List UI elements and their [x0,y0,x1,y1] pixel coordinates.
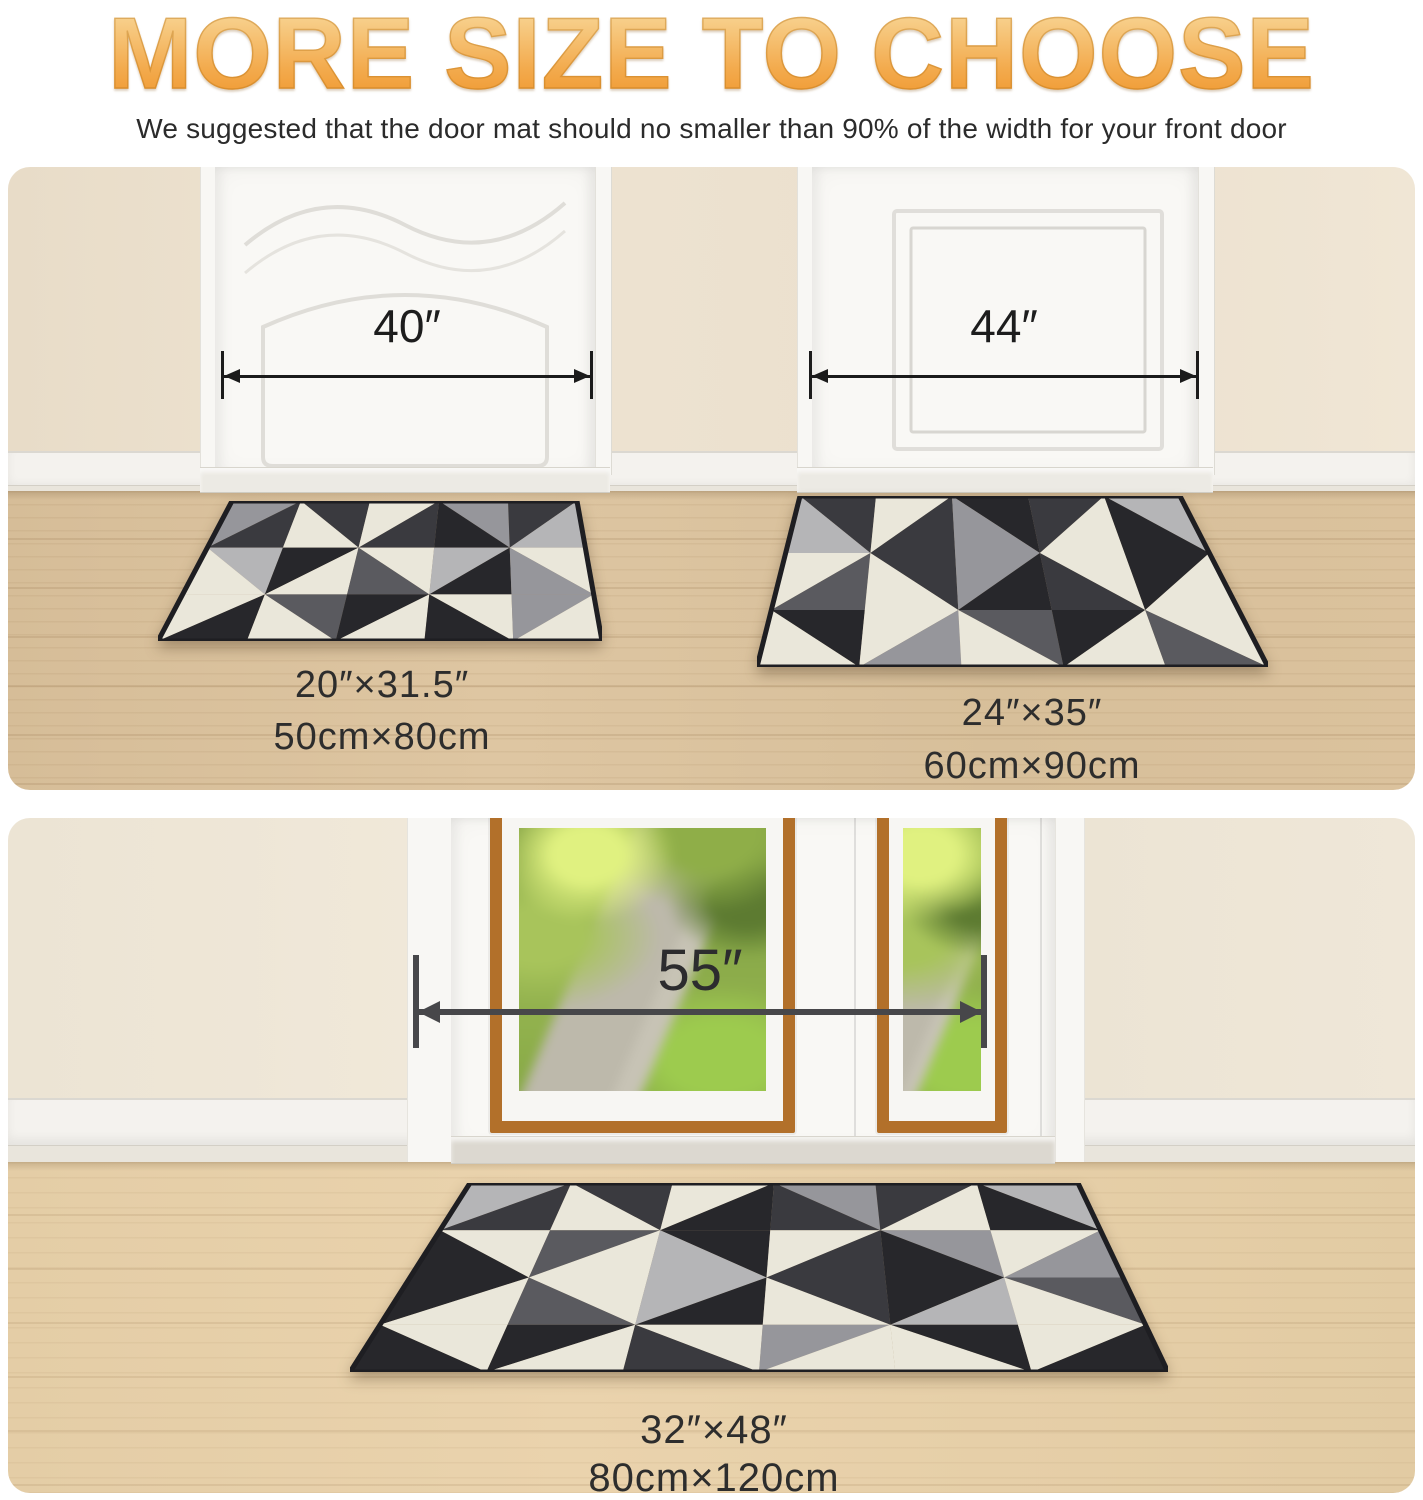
mat-small-size-label: 20″×31.5″ 50cm×80cm [273,659,490,763]
product-infographic: MORE SIZE TO CHOOSE We suggested that th… [0,0,1423,1500]
dimension-arrow-40: 40″ [222,351,592,399]
doormat-large [350,1183,1168,1372]
door-right-casing [1198,167,1215,475]
arrow-head-left [224,369,240,383]
size-inches: 20″×31.5″ [273,659,490,711]
size-inches: 32″×48″ [588,1406,839,1454]
door-casing-right [1055,818,1085,1162]
dimension-label-40: 40″ [373,299,440,353]
dimension-label-55: 55″ [657,937,742,1004]
dimension-arrow-44: 44″ [810,351,1198,399]
doormat-medium [757,496,1268,667]
arrow-head-right [574,369,590,383]
dimension-arrow-55: 55″ [415,955,985,1048]
arrow-head-right [960,1001,982,1023]
scene-two-doors: 40″ 44″ 20″×31.5″ 50cm×80cm 24″×35″ 60cm… [8,167,1415,790]
arrow-head-left [418,1001,440,1023]
size-cm: 60cm×90cm [923,740,1140,790]
size-cm: 80cm×120cm [588,1454,839,1493]
page-title: MORE SIZE TO CHOOSE [0,0,1423,112]
mat-large-size-label: 32″×48″ 80cm×120cm [588,1406,839,1493]
size-cm: 50cm×80cm [273,711,490,763]
page-subtitle: We suggested that the door mat should no… [0,113,1423,145]
arrow-tick [1196,351,1199,399]
arrow-tick [590,351,593,399]
scene-double-door: 55″ 32″×48″ 80cm×120cm [8,818,1415,1493]
size-inches: 24″×35″ [923,687,1140,740]
arrow-line [222,375,592,378]
door-left-casing [595,167,612,475]
arrow-head-right [1180,369,1196,383]
mat-medium-size-label: 24″×35″ 60cm×90cm [923,687,1140,790]
door-left-threshold [200,467,610,493]
arrow-head-left [812,369,828,383]
arrow-line [415,1009,985,1015]
door-threshold [451,1136,1055,1164]
door-right-threshold [797,467,1213,493]
doormat-small [158,501,602,641]
arrow-line [810,375,1198,378]
door-seam [1040,818,1042,1148]
dimension-label-44: 44″ [970,299,1037,353]
